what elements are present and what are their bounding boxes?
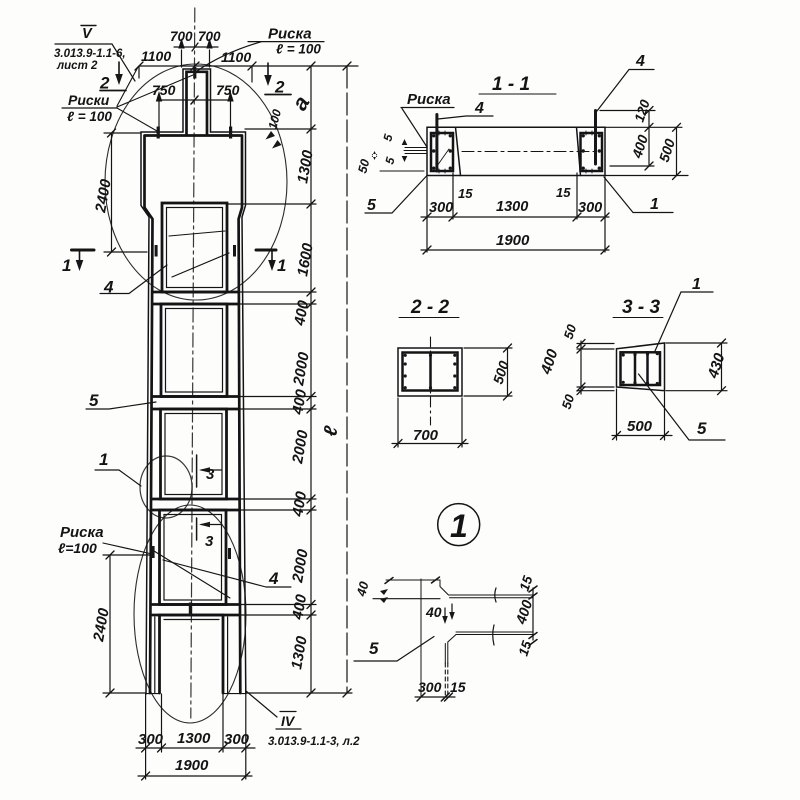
svg-text:300: 300 <box>429 200 453 216</box>
svg-text:Риска: Риска <box>60 524 104 541</box>
svg-text:2000: 2000 <box>290 350 313 387</box>
svg-text:Риска: Риска <box>268 26 312 43</box>
svg-text:300: 300 <box>138 731 164 748</box>
svg-text:2000: 2000 <box>289 547 312 584</box>
svg-text:лист 2: лист 2 <box>56 60 98 72</box>
svg-text:400: 400 <box>537 347 561 378</box>
svg-text:40: 40 <box>353 579 372 599</box>
svg-text:15: 15 <box>556 185 571 200</box>
svg-text:1: 1 <box>450 508 468 544</box>
svg-text:3 - 3: 3 - 3 <box>622 297 660 318</box>
svg-text:300: 300 <box>224 731 250 748</box>
svg-text:IV: IV <box>281 713 296 729</box>
svg-text:500: 500 <box>656 137 679 164</box>
svg-text:3.013.9-1.1-3, л.2: 3.013.9-1.1-3, л.2 <box>268 736 360 748</box>
svg-text:50: 50 <box>559 392 578 411</box>
svg-text:ℓ = 100: ℓ = 100 <box>67 109 112 124</box>
svg-text:ℓ: ℓ <box>320 424 342 437</box>
svg-text:5: 5 <box>369 639 379 658</box>
svg-text:15: 15 <box>516 639 535 658</box>
svg-text:1100: 1100 <box>141 48 171 64</box>
svg-text:ℓ = 100: ℓ = 100 <box>276 42 321 57</box>
svg-text:2 - 2: 2 - 2 <box>410 297 449 318</box>
svg-text:400: 400 <box>291 298 312 327</box>
svg-text:400: 400 <box>628 133 651 161</box>
svg-text:700: 700 <box>170 29 193 44</box>
svg-text:40: 40 <box>425 604 442 620</box>
svg-text:1300: 1300 <box>288 634 311 670</box>
svg-text:1: 1 <box>277 256 286 275</box>
svg-text:ℓ=100: ℓ=100 <box>58 540 97 556</box>
svg-text:1300: 1300 <box>496 199 528 215</box>
svg-text:500: 500 <box>490 359 513 386</box>
svg-text:700: 700 <box>198 29 221 44</box>
svg-text:15: 15 <box>450 679 466 695</box>
svg-text:1300: 1300 <box>177 730 211 747</box>
svg-text:a: a <box>287 91 315 114</box>
svg-text:5: 5 <box>89 391 99 410</box>
svg-text:V: V <box>82 26 93 42</box>
svg-text:5: 5 <box>382 155 397 165</box>
svg-text:1: 1 <box>650 196 659 213</box>
svg-text:5: 5 <box>697 419 707 438</box>
svg-text:15: 15 <box>458 186 473 201</box>
svg-text:1 - 1: 1 - 1 <box>492 74 530 95</box>
svg-text:500: 500 <box>627 418 653 435</box>
svg-text:120: 120 <box>632 97 653 124</box>
svg-text:Риски: Риски <box>68 92 110 108</box>
svg-text:Риска: Риска <box>407 91 451 108</box>
svg-text:430: 430 <box>704 351 728 382</box>
svg-text:4: 4 <box>474 100 484 117</box>
svg-text:50: 50 <box>561 322 580 341</box>
svg-text:5: 5 <box>367 197 377 214</box>
svg-text:400: 400 <box>289 592 310 621</box>
svg-text:700: 700 <box>413 427 439 444</box>
svg-text:300: 300 <box>578 200 602 216</box>
svg-text:5: 5 <box>380 132 395 142</box>
svg-text:1900: 1900 <box>175 757 209 774</box>
svg-text:300: 300 <box>418 679 442 695</box>
svg-text:1900: 1900 <box>496 232 530 249</box>
svg-text:750: 750 <box>216 82 240 98</box>
svg-text:4: 4 <box>268 569 279 588</box>
svg-text:1300: 1300 <box>294 148 317 184</box>
svg-text:50: 50 <box>355 158 372 175</box>
svg-text:1100: 1100 <box>221 49 251 65</box>
svg-text:1: 1 <box>692 276 701 293</box>
svg-text:1: 1 <box>99 450 108 469</box>
svg-text:4: 4 <box>635 53 645 70</box>
svg-text:3: 3 <box>206 466 215 483</box>
svg-text:3.013.9-1.1-6,: 3.013.9-1.1-6, <box>54 48 126 60</box>
svg-text:2000: 2000 <box>289 428 312 465</box>
svg-text:3: 3 <box>205 533 214 550</box>
svg-text:1600: 1600 <box>294 241 317 277</box>
svg-text:1: 1 <box>62 256 71 275</box>
